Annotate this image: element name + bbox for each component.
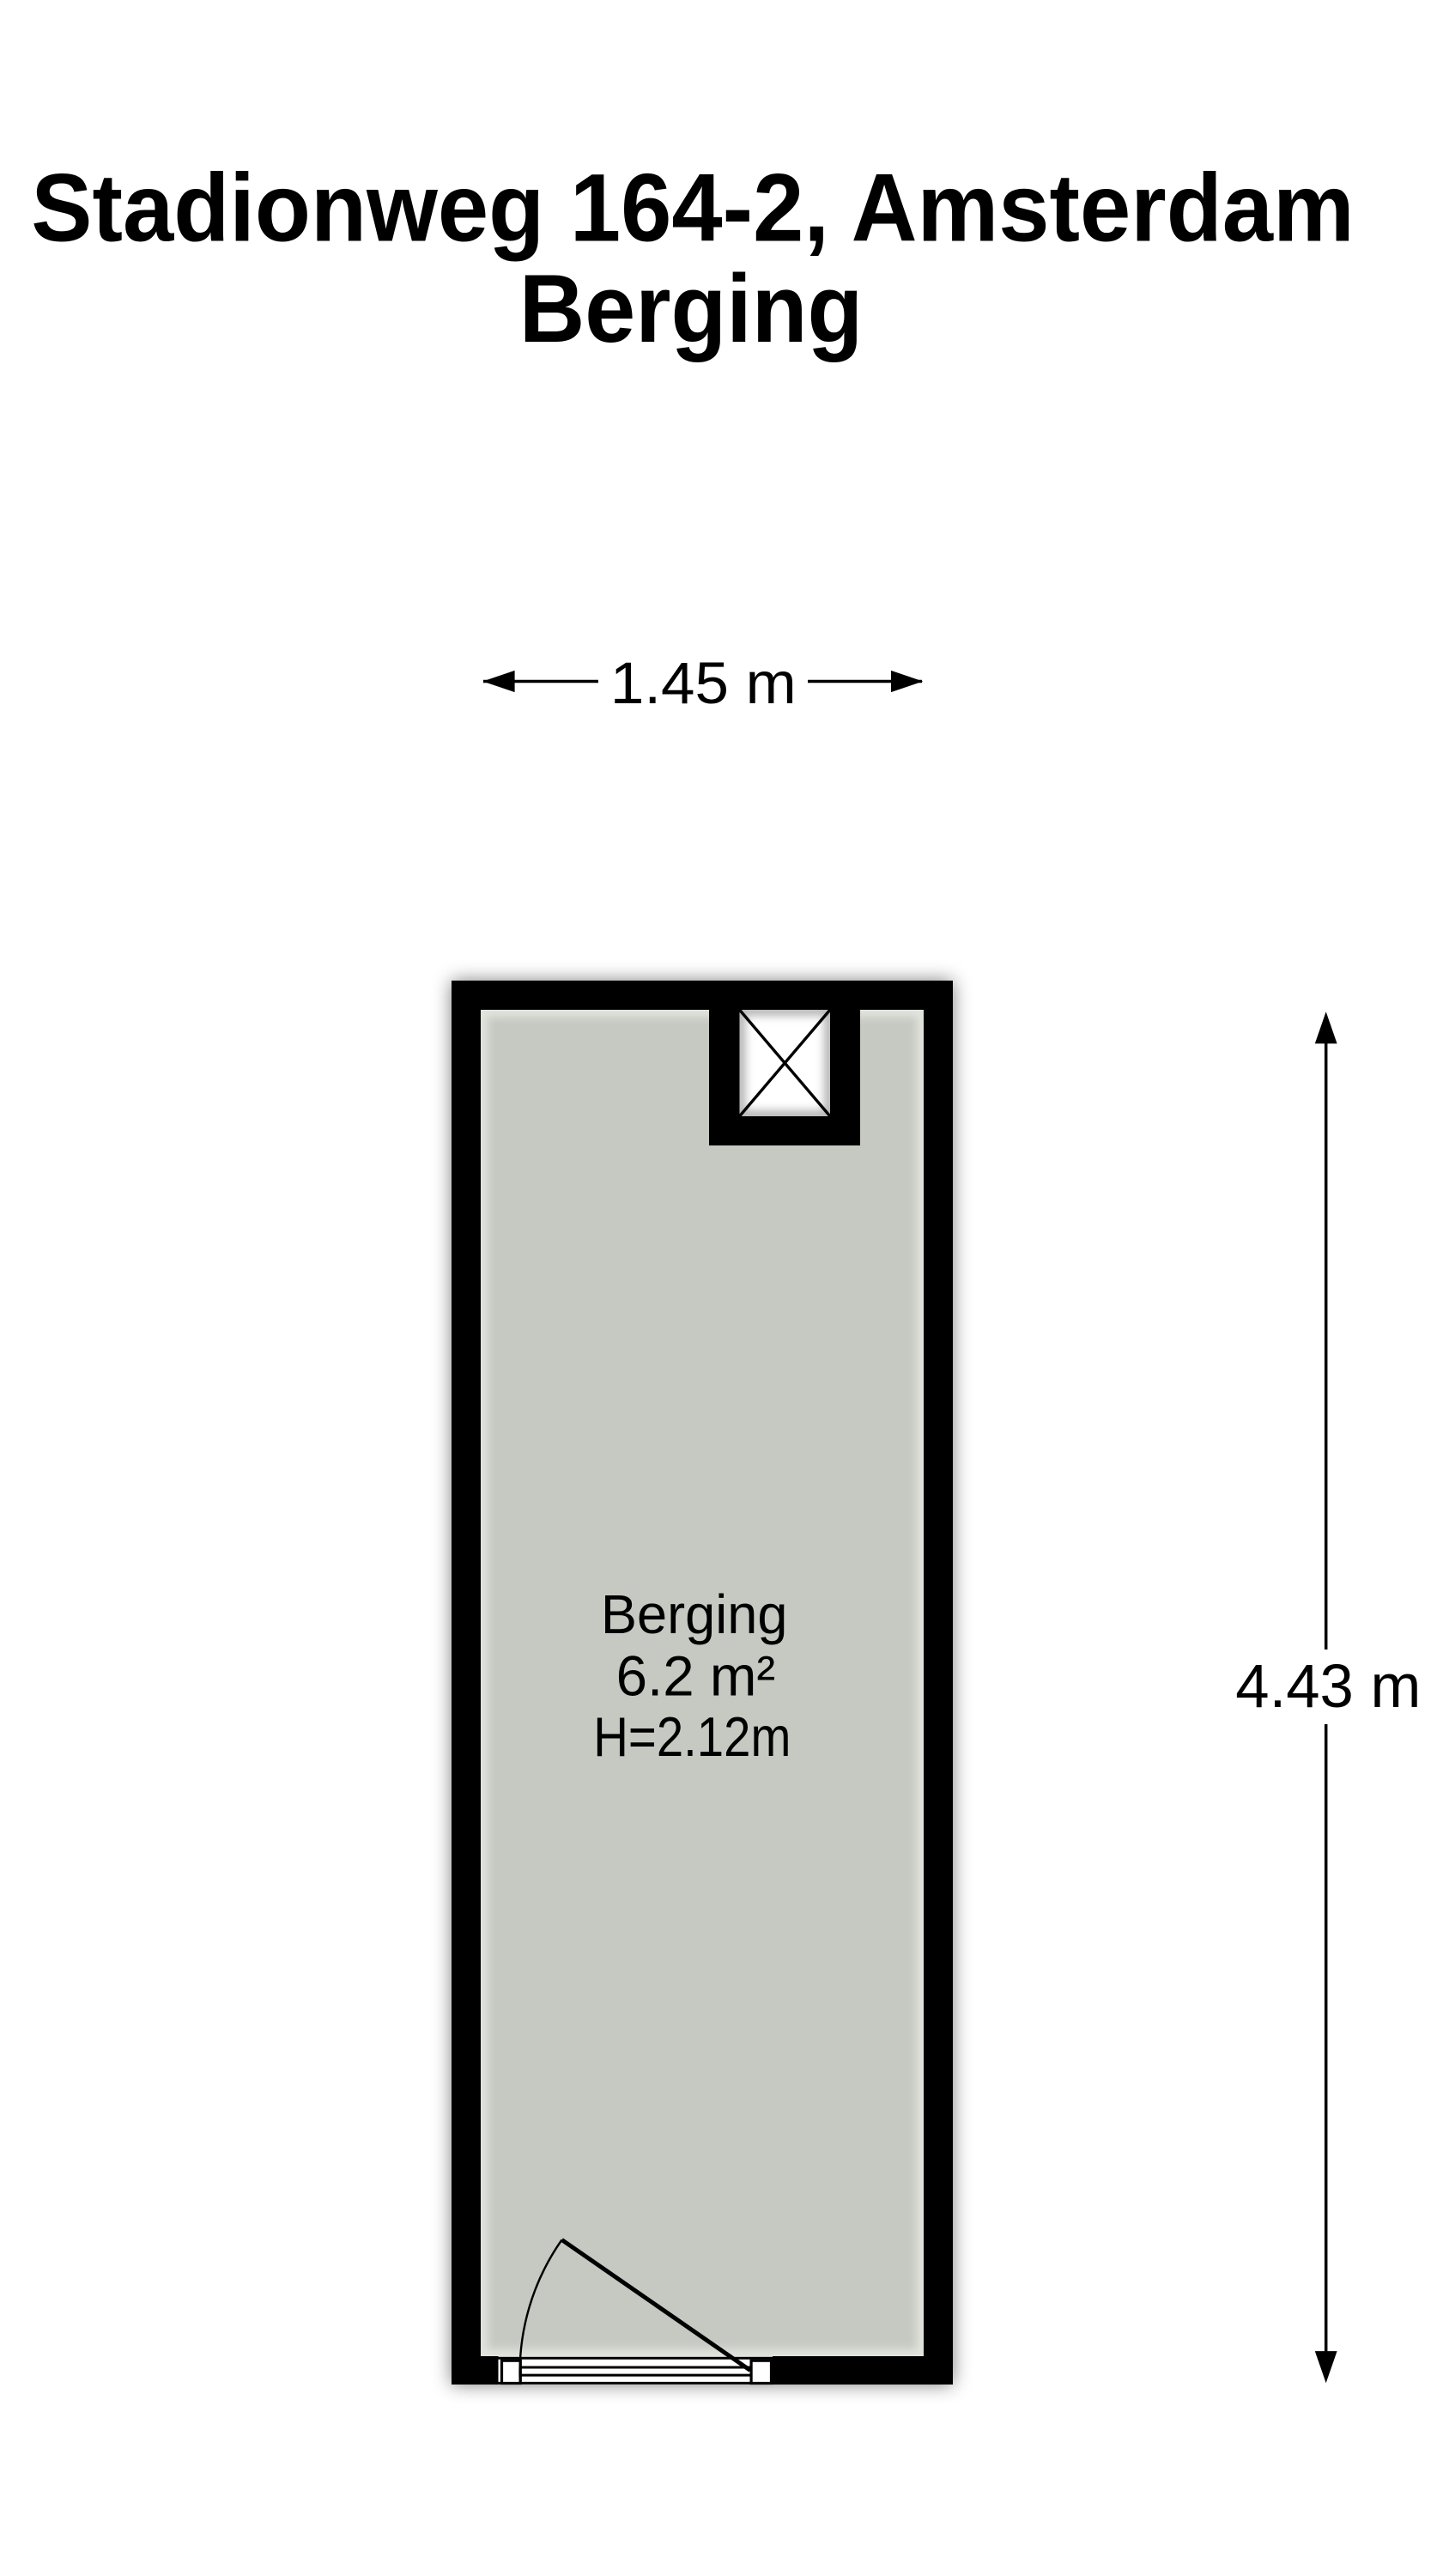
svg-text:Stadionweg 164-2, Amsterdam: Stadionweg 164-2, Amsterdam	[31, 155, 1354, 262]
svg-text:4.43 m: 4.43 m	[1235, 1653, 1421, 1721]
svg-text:6.2 m²: 6.2 m²	[616, 1643, 776, 1707]
svg-text:H=2.12m: H=2.12m	[593, 1705, 791, 1768]
svg-text:Berging: Berging	[601, 1584, 788, 1645]
svg-text:Berging: Berging	[519, 255, 864, 362]
svg-text:1.45 m: 1.45 m	[610, 650, 797, 716]
